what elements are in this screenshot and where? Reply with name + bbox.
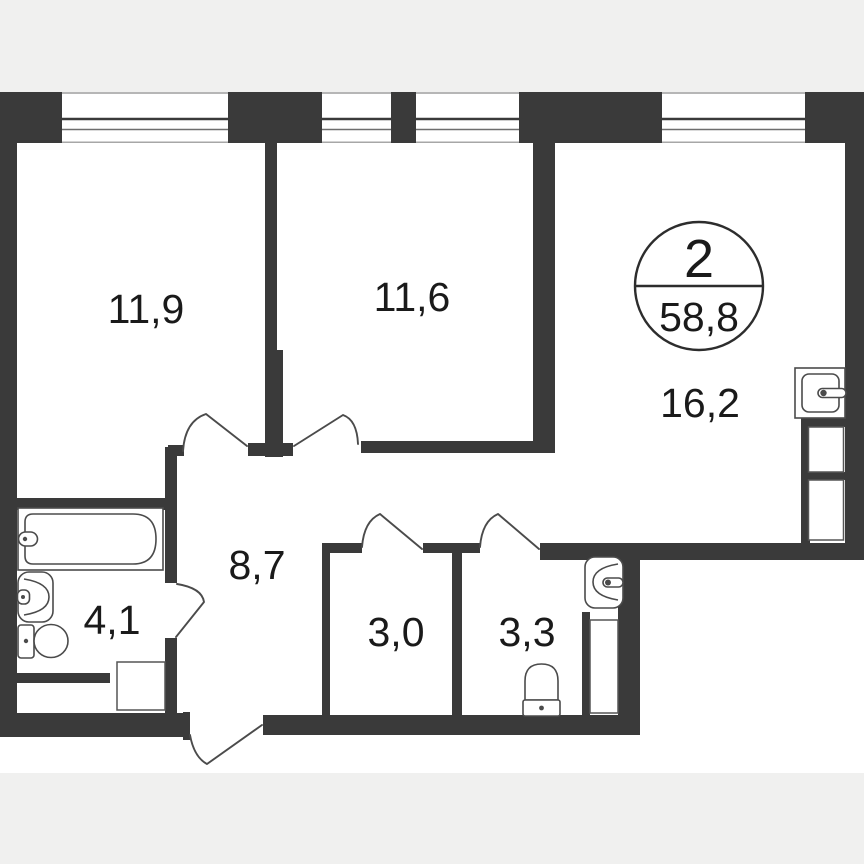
washbasin-icon (585, 557, 623, 608)
room-area-label: 8,7 (229, 542, 286, 588)
badge-room-count: 2 (684, 229, 714, 289)
wall-top-pier (521, 92, 660, 143)
wall-rooms-divider (265, 141, 277, 357)
wall-kitchen-bottom (540, 543, 864, 560)
wall-left-outer (0, 92, 17, 737)
badge-total-area: 58,8 (659, 294, 739, 340)
wall-right-outer (845, 143, 864, 560)
wall-bottom-left (0, 713, 187, 737)
vent-shaft (809, 480, 844, 540)
window-glass (660, 92, 807, 143)
toilet-icon (523, 664, 560, 716)
wall-bottom-mid (263, 715, 640, 735)
cupboard (117, 662, 165, 710)
wall-bathroom-right-lower (165, 638, 177, 716)
toilet-icon (18, 625, 68, 659)
kitchen-sink-icon (795, 368, 846, 418)
wall-shaft-thin (582, 612, 590, 717)
window-glass (320, 92, 393, 143)
window (320, 92, 393, 143)
windows (60, 92, 807, 143)
room-area-label: 11,9 (108, 286, 185, 332)
wall-rooms-divider (265, 350, 283, 457)
wall-top-pier (230, 92, 320, 143)
window-glass (414, 92, 521, 143)
wall-top-pier (393, 92, 414, 143)
entrance-jamb-left (183, 712, 190, 740)
wall-bathroom-right-upper (165, 447, 177, 583)
wall-top-pier (807, 92, 864, 143)
room-area-label: 4,1 (84, 597, 141, 643)
wall-wc-top (423, 543, 480, 553)
window-glass (60, 92, 230, 143)
wall-duct-divider (801, 472, 845, 480)
room-area-label: 16,2 (660, 380, 740, 426)
window (660, 92, 807, 143)
window (60, 92, 230, 143)
vent-shaft (809, 427, 844, 472)
vent-shaft (590, 620, 618, 713)
wall-room-bottom (361, 441, 555, 453)
room-area-label: 11,6 (374, 274, 451, 320)
bathtub-icon (18, 508, 163, 570)
wall-wc-left (322, 545, 330, 717)
wall-wc-divider (452, 545, 462, 717)
wall-room-kitchen-divider (533, 141, 555, 453)
apartment-badge: 2 58,8 (635, 222, 763, 350)
wall-bathroom-bottom (17, 673, 110, 683)
washbasin-icon (18, 572, 54, 622)
room-area-label: 3,3 (499, 609, 556, 655)
window (414, 92, 521, 143)
wall-rooms-divider-cap (248, 443, 293, 456)
floor-plan: 11,9 11,6 16,2 8,7 4,1 3,0 3,3 2 58,8 (0, 0, 864, 864)
room-area-label: 3,0 (368, 609, 425, 655)
